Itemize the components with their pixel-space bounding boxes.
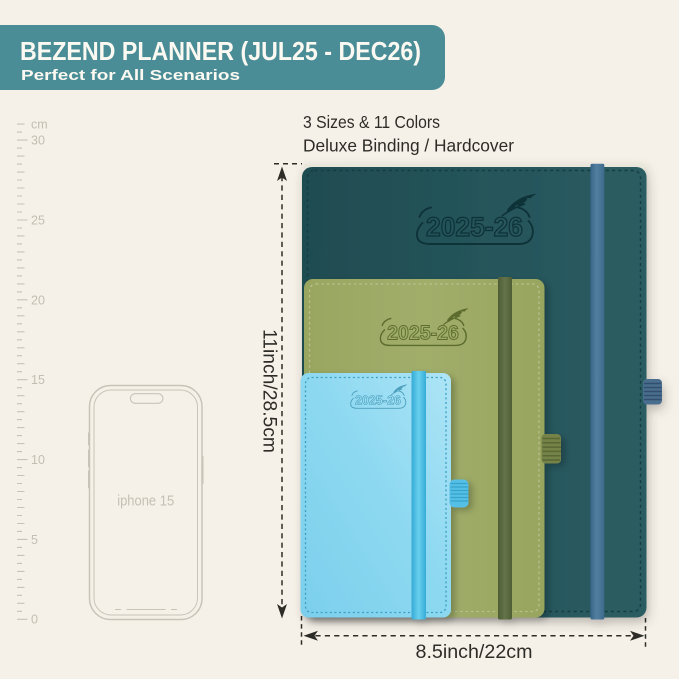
svg-text:30: 30: [31, 134, 45, 148]
svg-text:Perfect for All Scenarios: Perfect for All Scenarios: [21, 67, 240, 84]
svg-text:5: 5: [31, 533, 38, 547]
svg-text:25: 25: [31, 213, 45, 227]
svg-text:11inch/28.5cm: 11inch/28.5cm: [259, 329, 281, 453]
svg-text:8.5inch/22cm: 8.5inch/22cm: [416, 641, 533, 663]
svg-text:3 Sizes & 11 Colors: 3 Sizes & 11 Colors: [303, 112, 440, 132]
svg-text:20: 20: [31, 293, 45, 307]
svg-text:0: 0: [31, 613, 38, 627]
svg-text:iphone 15: iphone 15: [117, 494, 174, 510]
svg-text:15: 15: [31, 373, 45, 387]
svg-text:cm: cm: [31, 118, 48, 132]
svg-text:10: 10: [31, 453, 45, 467]
svg-text:BEZEND PLANNER (JUL25 - DEC26): BEZEND PLANNER (JUL25 - DEC26): [20, 38, 421, 66]
svg-text:Deluxe Binding / Hardcover: Deluxe Binding / Hardcover: [303, 136, 514, 156]
